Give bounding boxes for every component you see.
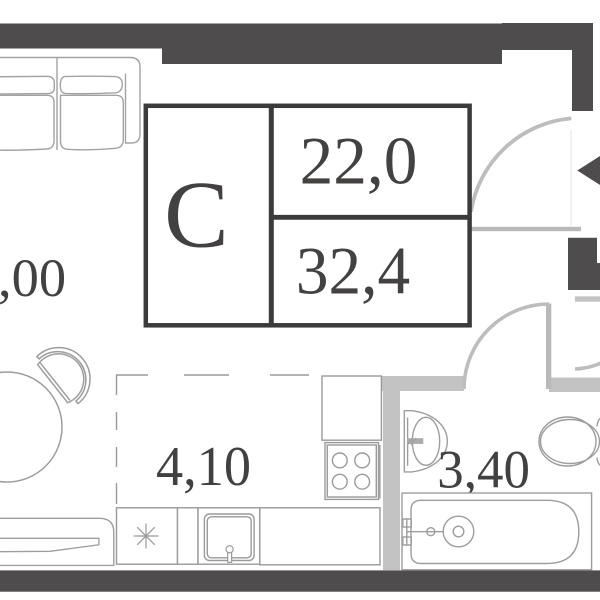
- svg-text:4,10: 4,10: [156, 435, 251, 497]
- svg-text:С: С: [164, 162, 229, 268]
- svg-text:32,4: 32,4: [296, 234, 410, 308]
- svg-text:22,0: 22,0: [300, 123, 418, 198]
- svg-text:3,40: 3,40: [437, 439, 530, 500]
- svg-text:,00: ,00: [0, 247, 66, 308]
